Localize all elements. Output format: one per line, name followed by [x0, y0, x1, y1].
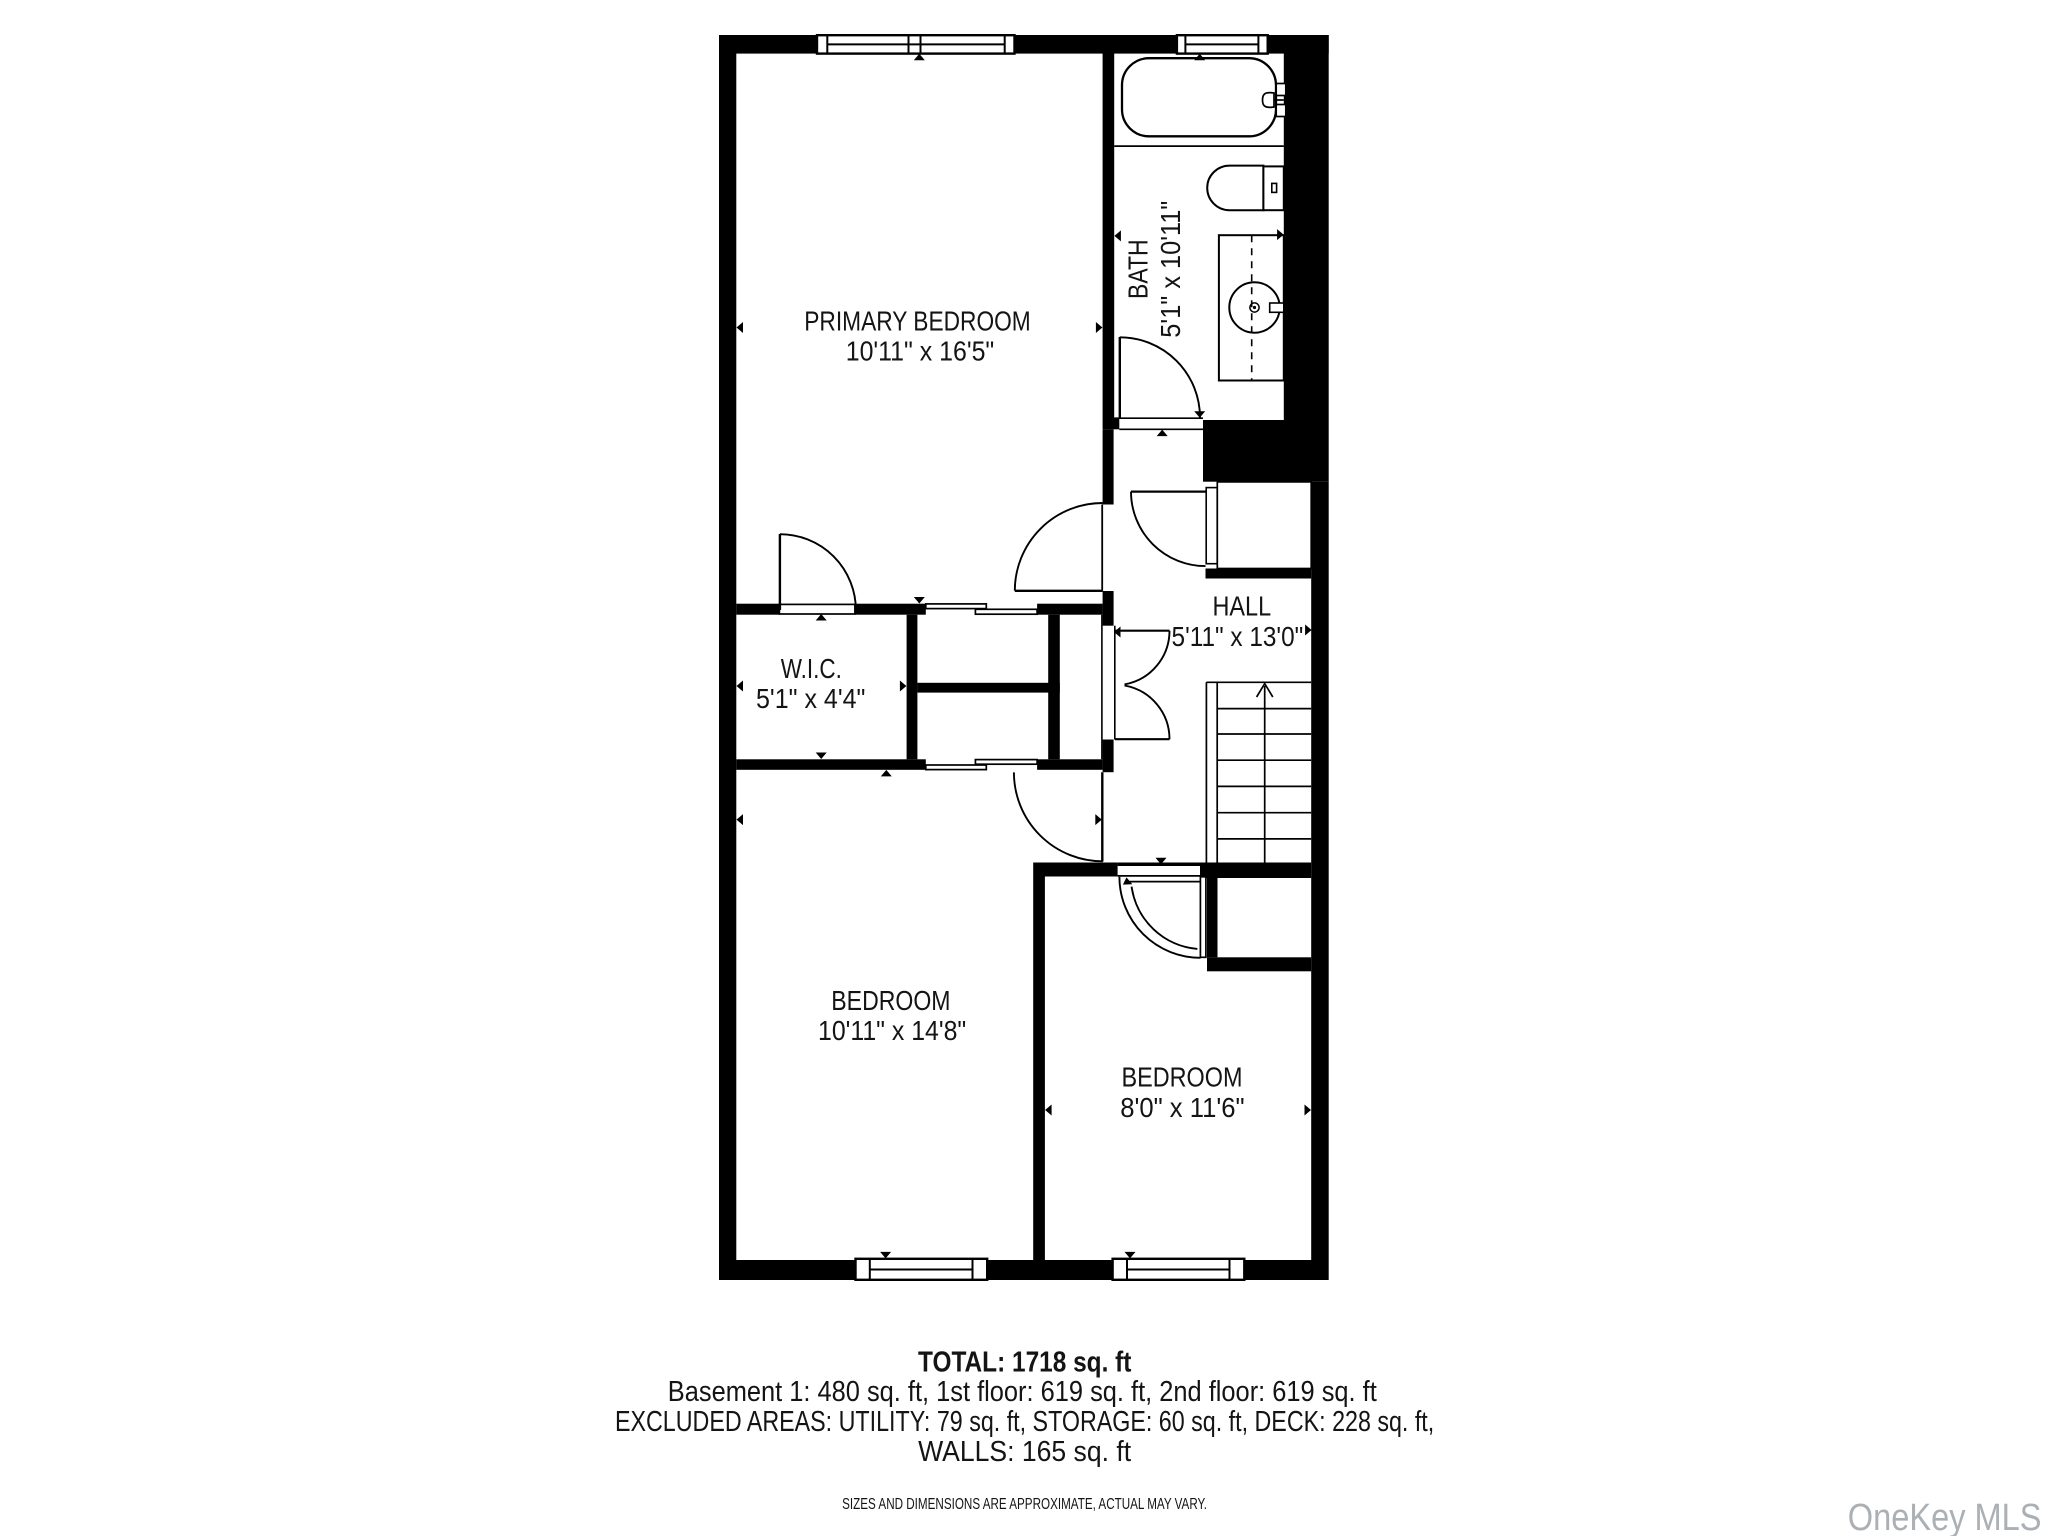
- svg-text:5'11" x 13'0": 5'11" x 13'0": [1172, 621, 1304, 652]
- svg-text:BEDROOM: BEDROOM: [831, 985, 950, 1016]
- svg-text:BEDROOM: BEDROOM: [1122, 1062, 1243, 1093]
- svg-text:PRIMARY BEDROOM: PRIMARY BEDROOM: [804, 306, 1031, 337]
- svg-text:Basement 1: 480 sq. ft, 1st fl: Basement 1: 480 sq. ft, 1st floor: 619 s…: [668, 1376, 1377, 1408]
- svg-text:EXCLUDED AREAS: UTILITY: 79 sq: EXCLUDED AREAS: UTILITY: 79 sq. ft, STOR…: [615, 1406, 1434, 1438]
- svg-text:10'11" x 16'5": 10'11" x 16'5": [846, 336, 995, 367]
- svg-text:10'11" x 14'8": 10'11" x 14'8": [818, 1015, 966, 1046]
- svg-text:TOTAL: 1718 sq. ft: TOTAL: 1718 sq. ft: [918, 1346, 1132, 1378]
- svg-text:SIZES AND DIMENSIONS ARE APPRO: SIZES AND DIMENSIONS ARE APPROXIMATE, AC…: [842, 1496, 1207, 1513]
- svg-text:BATH: BATH: [1122, 239, 1153, 299]
- svg-text:W.I.C.: W.I.C.: [781, 653, 842, 684]
- svg-text:5'1" x 4'4": 5'1" x 4'4": [756, 683, 865, 714]
- svg-text:5'1" x 10'11": 5'1" x 10'11": [1155, 201, 1186, 338]
- svg-text:WALLS: 165 sq. ft: WALLS: 165 sq. ft: [918, 1436, 1131, 1468]
- svg-text:HALL: HALL: [1213, 591, 1272, 622]
- svg-text:8'0" x 11'6": 8'0" x 11'6": [1120, 1092, 1244, 1123]
- svg-text:OneKey MLS: OneKey MLS: [1848, 1497, 2042, 1536]
